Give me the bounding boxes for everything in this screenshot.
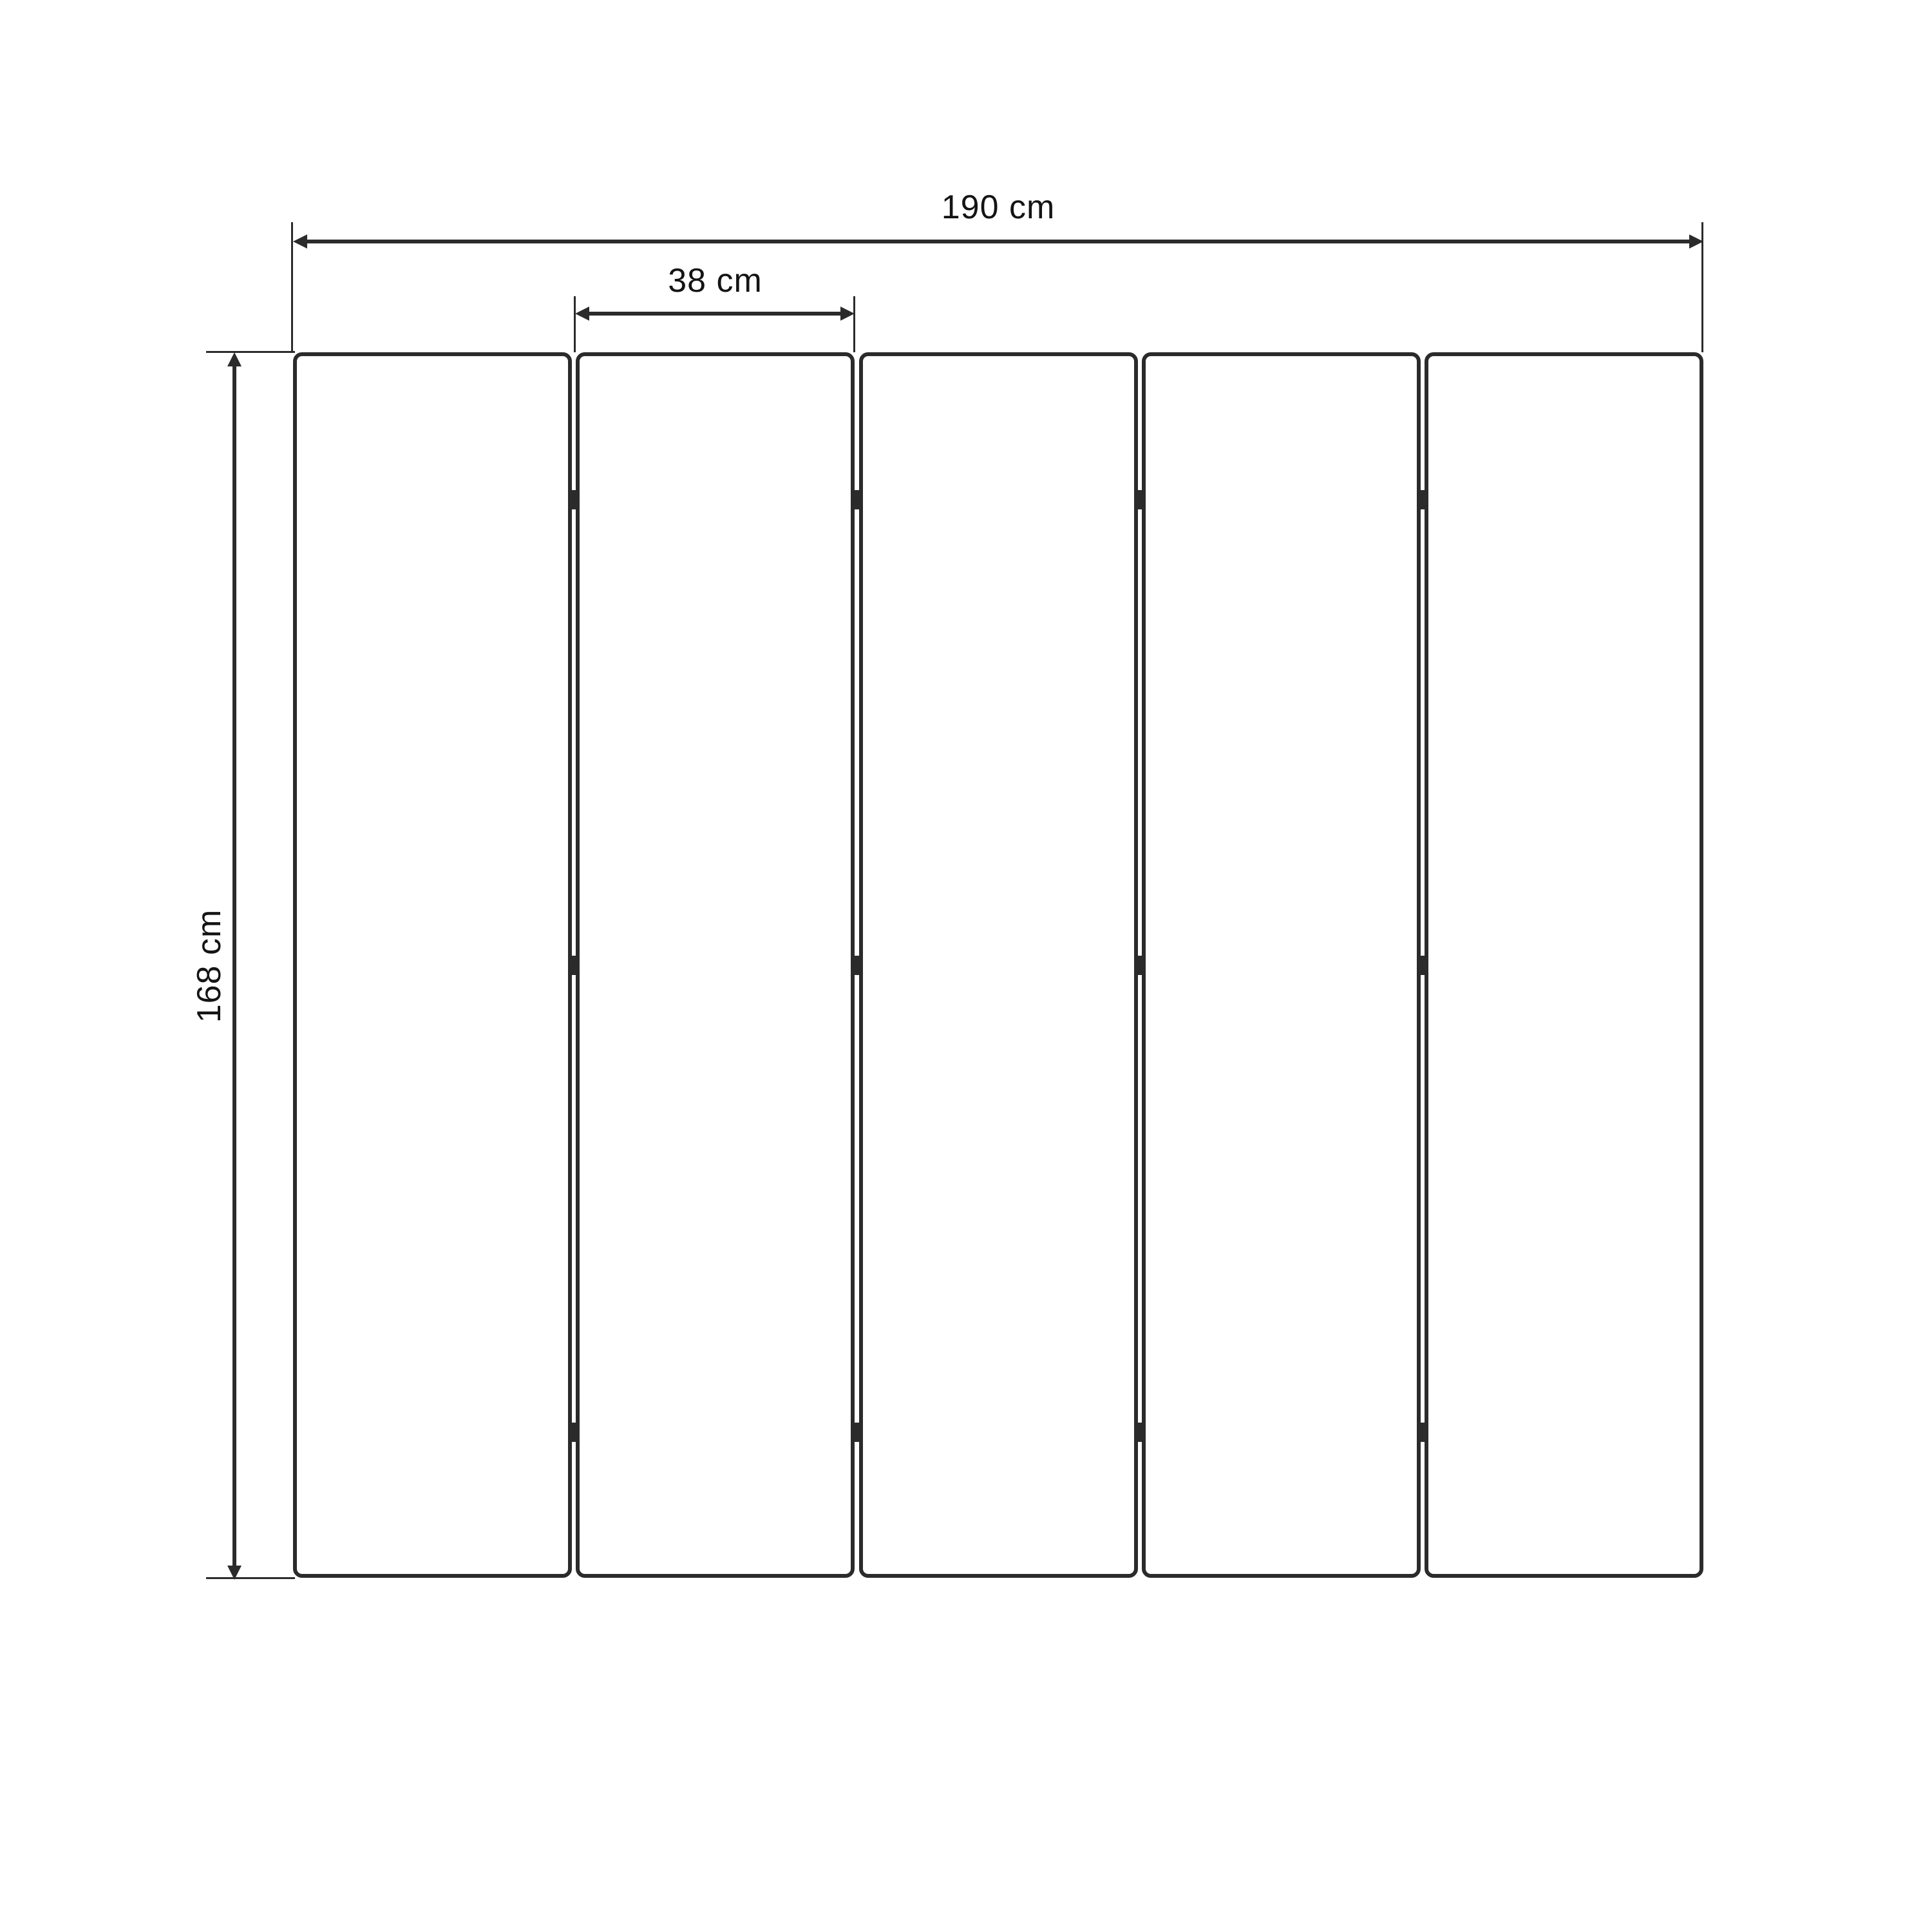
panel-width-dimension-line <box>585 312 845 316</box>
arrow-left-icon <box>575 307 589 321</box>
hinge-mark <box>1135 490 1145 509</box>
height-extension-line-bottom <box>206 1577 295 1579</box>
panel-4 <box>1142 352 1421 1578</box>
height-extension-line-top <box>206 351 295 353</box>
total-width-dimension-line <box>303 240 1694 243</box>
arrow-right-icon <box>1689 234 1703 249</box>
hinge-mark <box>851 1423 862 1442</box>
height-label: 168 cm <box>193 869 226 1063</box>
panel-5 <box>1425 352 1703 1578</box>
arrow-down-icon <box>227 1566 241 1580</box>
diagram-canvas: 190 cm 38 cm 168 cm <box>0 0 1932 1932</box>
hinge-mark <box>1135 956 1145 975</box>
panel-2 <box>576 352 855 1578</box>
arrow-up-icon <box>227 352 241 366</box>
arrow-left-icon <box>293 234 307 249</box>
total-width-label: 190 cm <box>293 191 1703 224</box>
hinge-mark <box>1417 1423 1428 1442</box>
hinge-mark <box>851 490 862 509</box>
panel-width-extension-line-left <box>574 296 576 352</box>
hinge-mark <box>1417 490 1428 509</box>
hinge-mark <box>851 956 862 975</box>
hinge-mark <box>569 956 579 975</box>
hinge-mark <box>569 1423 579 1442</box>
panel-3 <box>859 352 1138 1578</box>
height-dimension-line <box>232 361 236 1571</box>
panel-width-label: 38 cm <box>576 264 855 298</box>
hinge-mark <box>1135 1423 1145 1442</box>
hinge-mark <box>569 490 579 509</box>
panel-width-extension-line-right <box>853 296 855 352</box>
panel-1 <box>293 352 572 1578</box>
hinge-mark <box>1417 956 1428 975</box>
arrow-right-icon <box>840 307 855 321</box>
